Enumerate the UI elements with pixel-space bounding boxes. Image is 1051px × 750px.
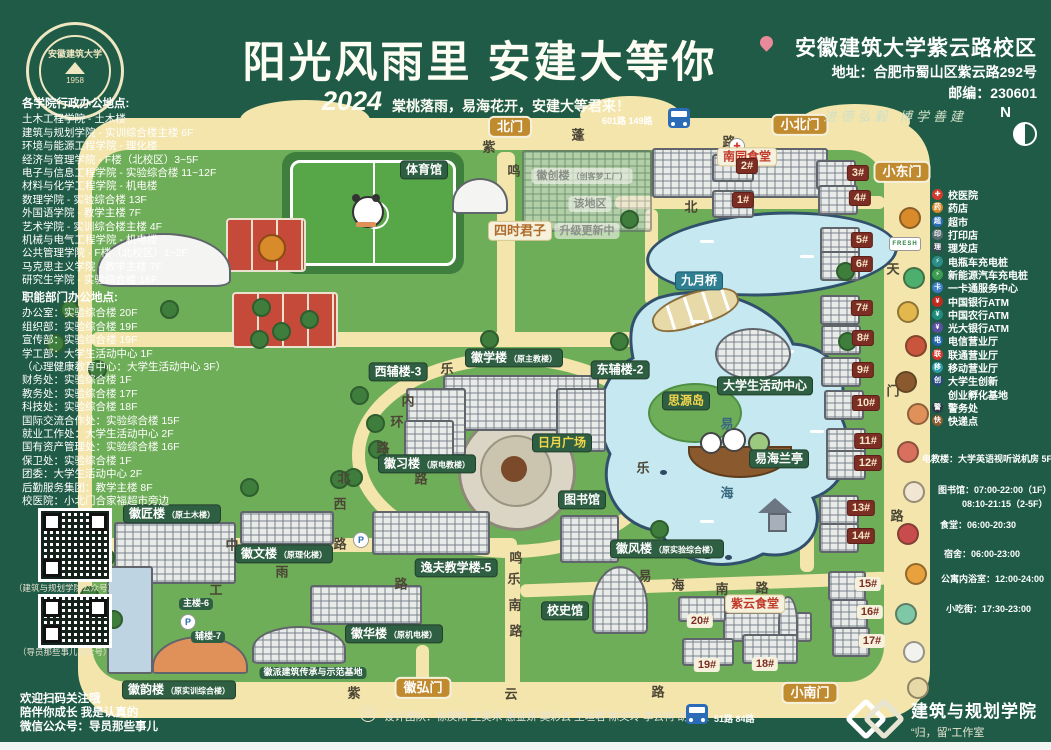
dorm-15: 15# — [855, 577, 881, 591]
dorm-8: 8# — [852, 330, 874, 346]
label-huixue-building: 徽学楼（原主教楼） — [465, 348, 563, 367]
label-hui-architecture-base: 徽派建筑传承与示范基地 — [259, 667, 366, 679]
legend-icon: 印 — [932, 229, 943, 240]
road-name-char: 乐 — [636, 458, 649, 477]
legend-icon: 警 — [932, 402, 943, 413]
department-location-item: 科技处：实验综合楼 18F — [22, 401, 272, 414]
road-name-char: 西 — [333, 494, 346, 513]
tree — [272, 322, 291, 341]
road-name-char: 易 — [720, 414, 733, 433]
college-location-item: 电子与信息工程学院 - 实验综合楼 11~12F — [22, 167, 272, 180]
college-logo-block: 建筑与规划学院 “归，留”工作室 — [851, 697, 1037, 740]
fish — [660, 470, 667, 475]
label-huichuang-building: 徽创楼（创客梦工厂） — [532, 168, 633, 184]
college-location-item: 公共管理学院 - F楼（北校区）1~2F — [22, 247, 272, 260]
food-doodle — [903, 267, 925, 289]
dorm-19: 19# — [694, 658, 720, 672]
legend-item: ✚校医院 — [932, 188, 1048, 201]
hours-line: 电教楼：大学英语视听说机房 5F — [922, 452, 1051, 465]
wave — [700, 240, 714, 243]
department-location-item: （心理健康教育中心：大学生活动中心 3F） — [22, 361, 272, 374]
campus-postcode: 邮编：230601 — [948, 83, 1037, 103]
compass-n-label: N — [1000, 104, 1011, 121]
hours-line: 宿舍：06:00-23:00 — [944, 547, 1020, 560]
dorm-17: 17# — [859, 634, 885, 648]
bus-routes-south: 51路 84路 — [714, 712, 755, 725]
college-location-item: 经济与管理学院 - F楼（北校区）3~5F — [22, 154, 272, 167]
bus-routes-north: 601路 149路 — [602, 114, 653, 127]
qr-caption-college: （建筑与规划学院公众号） — [14, 582, 164, 594]
qr-caption-counselor: （导员那些事儿公众号） — [18, 646, 168, 658]
food-doodle — [905, 335, 927, 357]
road-name-char: 路 — [333, 534, 346, 553]
tree — [610, 332, 629, 351]
label-annex-7: 辅楼-7 — [191, 631, 225, 643]
college-locations-list: 土木工程学院 - 土木楼建筑与规划学院 - 实训综合楼主楼 6F环境与能源工程学… — [22, 113, 272, 287]
college-locations-title: 各学院行政办公地点: — [22, 98, 272, 111]
road-name-char: 易 — [638, 566, 651, 585]
legend-item: 移移动营业厅 — [932, 361, 1048, 374]
gate-small-east: 小东门 — [873, 161, 930, 183]
dorm-14: 14# — [847, 528, 875, 544]
dorm-12: 12# — [854, 455, 882, 471]
hours-line: 08:10-21:15（2-5F） — [962, 497, 1048, 510]
legend-icon: 理 — [932, 242, 943, 253]
dorm-6: 6# — [851, 256, 873, 272]
college-location-item: 艺术学院 - 实训综合楼主楼 4F — [22, 221, 272, 234]
college-location-item: 土木工程学院 - 土木楼 — [22, 113, 272, 126]
road-name-char: 乐 — [440, 359, 453, 378]
dorm-18: 18# — [752, 657, 778, 671]
department-location-item: 就业工作处：大学生活动中心 2F — [22, 428, 272, 441]
dorm-20: 20# — [687, 614, 713, 628]
tree — [350, 386, 369, 405]
road-name-char: 蓬 — [571, 125, 584, 144]
legend-icon: ⚡ — [932, 256, 943, 267]
bus-icon — [686, 704, 708, 724]
dorm-13: 13# — [847, 500, 875, 516]
department-location-item: 学工部：大学生活动中心 1F — [22, 348, 272, 361]
road-name-char: 雨 — [275, 562, 288, 581]
department-locations-title: 职能部门办公地点: — [22, 292, 272, 305]
design-team-credits: 设计团队：徐庚阳 王昊禾 惠金娇 莫彩云 王垣茗 陈文玲 李云柯 胡中昱 — [384, 709, 709, 724]
road-name-char: 路 — [394, 574, 407, 593]
college-location-item: 材料与化学工程学院 - 机电楼 — [22, 180, 272, 193]
dorm-4: 4# — [849, 190, 871, 206]
logo-year: 1958 — [41, 76, 109, 85]
campus-map-poster: 安徽建筑大学 1958 阳光风雨里 安建大等你 2024 棠桃落雨，易海花开，安… — [0, 0, 1051, 750]
legend-icon: ✚ — [932, 189, 943, 200]
wave — [800, 255, 814, 258]
map-legend: ✚校医院药药店超超市印打印店理理发店⚡电瓶车充电桩⚡新能源汽车充电桩卡一卡通服务… — [932, 188, 1048, 427]
department-location-item: 教务处：实验综合楼 17F — [22, 388, 272, 401]
designer-icon — [360, 706, 376, 722]
department-locations-panel: 职能部门办公地点: 办公室：实验综合楼 20F组织部：实验综合楼 19F宣传部：… — [22, 292, 272, 509]
tree — [650, 520, 669, 539]
food-doodle — [897, 441, 919, 463]
label-area-note: 该地区 — [569, 196, 612, 212]
food-doodle — [907, 677, 929, 699]
road-name-char: 鸣 — [507, 161, 520, 180]
boat-mascot — [700, 432, 722, 454]
food-doodle — [903, 641, 925, 663]
bus-icon — [668, 108, 690, 128]
tree — [300, 310, 319, 329]
legend-icon: 药 — [932, 202, 943, 213]
campus-address: 地址：合肥市蜀山区紫云路292号 — [832, 62, 1037, 82]
label-history-museum: 校史馆 — [541, 601, 589, 620]
gate-small-south: 小南门 — [781, 682, 838, 704]
tree — [480, 330, 499, 349]
college-location-item: 外国语学院 - 教学主楼 7F — [22, 207, 272, 220]
college-locations-panel: 各学院行政办公地点: 土木工程学院 - 土木楼建筑与规划学院 - 实训综合楼主楼… — [22, 98, 272, 288]
building — [715, 328, 791, 380]
school-motto: 进德弘毅 博学善建 — [823, 106, 967, 125]
department-location-item: 团委：大学生活动中心 2F — [22, 468, 272, 481]
wave — [700, 520, 714, 523]
legend-item: 快快递点 — [932, 414, 1048, 427]
department-location-item: 校医院：小北门合家福超市旁边 — [22, 495, 272, 508]
legend-item: 电电信营业厅 — [932, 334, 1048, 347]
hours-line: 食堂：06:00-20:30 — [940, 518, 1016, 531]
label-yifu-building: 逸夫教学楼-5 — [415, 558, 498, 577]
tree — [620, 210, 639, 229]
hours-line: 图书馆：07:00-22:00（1F） — [938, 483, 1051, 496]
legend-icon: ⚡ — [932, 269, 943, 280]
road-name-char: 云 — [504, 684, 517, 703]
food-doodle — [897, 523, 919, 545]
dorm-16: 16# — [857, 605, 883, 619]
dorm-3: 3# — [847, 165, 869, 181]
legend-item: 警警务处 — [932, 401, 1048, 414]
tree — [366, 414, 385, 433]
food-doodle — [895, 371, 917, 393]
food-doodle — [905, 563, 927, 585]
dorm-10: 10# — [852, 395, 880, 411]
plaza-center — [501, 456, 527, 482]
building — [404, 420, 454, 458]
poi-icon: P — [353, 532, 369, 548]
road-name-char: 路 — [509, 621, 522, 640]
legend-icon: 卡 — [932, 282, 943, 293]
compass-icon — [1013, 122, 1037, 146]
road-name-char: 内 — [401, 391, 414, 410]
poster-year: 2024 — [322, 86, 382, 117]
building — [372, 511, 490, 555]
label-huifeng-building: 徽风楼（原实验综合楼） — [610, 539, 724, 558]
qr-code-counselor — [38, 594, 112, 648]
road-name-char: 紫 — [347, 683, 360, 702]
legend-item: 理理发店 — [932, 241, 1048, 254]
road-name-char: 紫 — [482, 137, 495, 156]
hours-line: 小吃街：17:30-23:00 — [946, 602, 1031, 615]
road-name-char: 鸣 — [509, 548, 522, 567]
label-ziyun-canteen: 紫云食堂 — [725, 594, 785, 613]
label-yihai-pavilion: 易海兰亭 — [749, 449, 809, 468]
label-huiwen-building: 徽文楼（原理化楼） — [235, 544, 333, 563]
label-upgrading: 升级更新中 — [555, 223, 620, 239]
road-name-char: 路 — [651, 682, 664, 701]
label-four-seasons: 四时君子 — [488, 221, 552, 241]
poi-icon: FRESH — [889, 237, 921, 251]
college-location-item: 数理学院 - 实验综合楼 13F — [22, 194, 272, 207]
legend-icon: ¥ — [932, 296, 943, 307]
legend-icon: 电 — [932, 335, 943, 346]
dorm-2: 2# — [736, 158, 758, 174]
label-september-bridge: 九月桥 — [675, 271, 723, 290]
panda-ear — [372, 194, 380, 202]
building — [252, 626, 346, 664]
bottom-strip — [0, 742, 1051, 750]
dorm-9: 9# — [852, 362, 874, 378]
college-location-item: 机械与电气工程学院 - 机电楼 — [22, 234, 272, 247]
road-north-gate — [497, 152, 515, 344]
college-location-item: 环境与能源工程学院 - 理化楼 — [22, 140, 272, 153]
campus-name: 安徽建筑大学紫云路校区 — [795, 32, 1037, 62]
food-doodle — [899, 207, 921, 229]
legend-item: ⚡新能源汽车充电桩 — [932, 268, 1048, 281]
legend-icon: 超 — [932, 216, 943, 227]
location-pin-icon — [757, 33, 775, 51]
label-west-annex: 西辅楼-3 — [369, 362, 428, 381]
road-name-char: 北 — [337, 468, 350, 487]
label-sun-moon-plaza: 日月广场 — [532, 433, 592, 452]
road-name-char: 工 — [209, 580, 222, 599]
label-huixi-building: 徽习楼（原电教楼） — [378, 454, 476, 473]
lakeside-pavilion-roof — [758, 498, 792, 513]
logo-building-glyph — [65, 62, 85, 74]
department-location-item: 宣传部：实验综合楼 19F — [22, 334, 272, 347]
logo-school-name: 安徽建筑大学 — [41, 47, 109, 60]
label-huiyun-building: 徽韵楼（原实训综合楼） — [122, 680, 236, 699]
legend-item: 药药店 — [932, 201, 1048, 214]
department-location-item: 办公室：实验综合楼 20F — [22, 307, 272, 320]
lakeside-pavilion — [768, 513, 787, 532]
food-doodle — [897, 301, 919, 323]
legend-icon: 快 — [932, 415, 943, 426]
road-name-char: 海 — [720, 483, 733, 502]
legend-item: 卡一卡通服务中心 — [932, 281, 1048, 294]
gate-small-north: 小北门 — [771, 114, 828, 136]
road-name-char: 乐 — [507, 569, 520, 588]
road-name-char: 路 — [890, 506, 903, 525]
legend-item: ⚡电瓶车充电桩 — [932, 254, 1048, 267]
legend-item: ¥光大银行ATM — [932, 321, 1048, 334]
poster-title: 阳光风雨里 安建大等你 — [200, 28, 760, 90]
road-name-char: 环 — [390, 412, 403, 431]
label-gymnasium: 体育馆 — [400, 160, 448, 179]
food-doodle — [895, 603, 917, 625]
college-location-item: 建筑与规划学院 - 实训综合楼主楼 6F — [22, 127, 272, 140]
legend-item: ¥中国银行ATM — [932, 294, 1048, 307]
dorm-5: 5# — [851, 232, 873, 248]
college-name: 建筑与规划学院 — [911, 697, 1037, 722]
legend-item: 联联通营业厅 — [932, 348, 1048, 361]
food-doodle — [903, 481, 925, 503]
legend-item: 创业孵化基地 — [932, 387, 1048, 400]
department-location-item: 保卫处：实验综合楼 1F — [22, 455, 272, 468]
label-main-6: 主楼-6 — [179, 598, 213, 610]
dorm-11: 11# — [854, 433, 882, 449]
label-siyuan-island: 思源岛 — [662, 391, 710, 410]
poster-slogan: 棠桃落雨，易海花开，安建大等君来！ — [392, 96, 630, 116]
wave — [810, 430, 824, 433]
road-name-char: 天 — [886, 259, 899, 278]
department-location-item: 国有资产管理处：实验综合楼 16F — [22, 441, 272, 454]
department-locations-list: 办公室：实验综合楼 20F组织部：实验综合楼 19F宣传部：实验综合楼 19F学… — [22, 307, 272, 508]
panda-scarf — [356, 222, 376, 227]
fish — [725, 555, 732, 560]
college-location-item: 马克思主义学院 - 教学主楼 7F — [22, 261, 272, 274]
hours-line: 公寓内浴室：12:00-24:00 — [941, 572, 1044, 585]
label-library: 图书馆 — [558, 490, 606, 509]
legend-item: 创大学生创新 — [932, 374, 1048, 387]
legend-item: 印打印店 — [932, 228, 1048, 241]
label-east-annex: 东辅楼-2 — [591, 360, 650, 379]
food-doodle — [907, 403, 929, 425]
department-location-item: 组织部：实验综合楼 19F — [22, 321, 272, 334]
qr-code-college — [38, 508, 112, 582]
legend-item: ¥中国农行ATM — [932, 308, 1048, 321]
legend-icon: 移 — [932, 362, 943, 373]
legend-item: 超超市 — [932, 215, 1048, 228]
wave — [690, 320, 704, 323]
department-location-item: 国际交流合作处：实验综合楼 15F — [22, 415, 272, 428]
gate-north: 北门 — [488, 116, 532, 138]
legend-icon: 创 — [932, 375, 943, 386]
label-huihua-building: 徽华楼（原机电楼） — [345, 624, 443, 643]
department-location-item: 后勤服务集团：教学主楼 8F — [22, 482, 272, 495]
legend-icon: ¥ — [932, 309, 943, 320]
dorm-1: 1# — [732, 192, 754, 208]
department-location-item: 财务处：实验综合楼 1F — [22, 374, 272, 387]
studio-name: “归，留”工作室 — [911, 724, 1037, 740]
road-name-char: 北 — [684, 197, 697, 216]
road-name-char: 南 — [508, 595, 521, 614]
panda-ear — [352, 194, 360, 202]
legend-icon: ¥ — [932, 322, 943, 333]
legend-icon: 联 — [932, 349, 943, 360]
road-name-char: 海 — [671, 575, 684, 594]
college-location-item: 研究生学院 - 实验综合楼 16F — [22, 274, 272, 287]
gate-huihong: 徽弘门 — [394, 677, 451, 699]
building — [240, 511, 334, 545]
dorm-7: 7# — [851, 300, 873, 316]
follow-line-3: 微信公众号：导员那些事儿 — [20, 718, 158, 734]
label-student-center: 大学生活动中心 — [717, 376, 813, 395]
poi-icon: P — [180, 614, 196, 630]
